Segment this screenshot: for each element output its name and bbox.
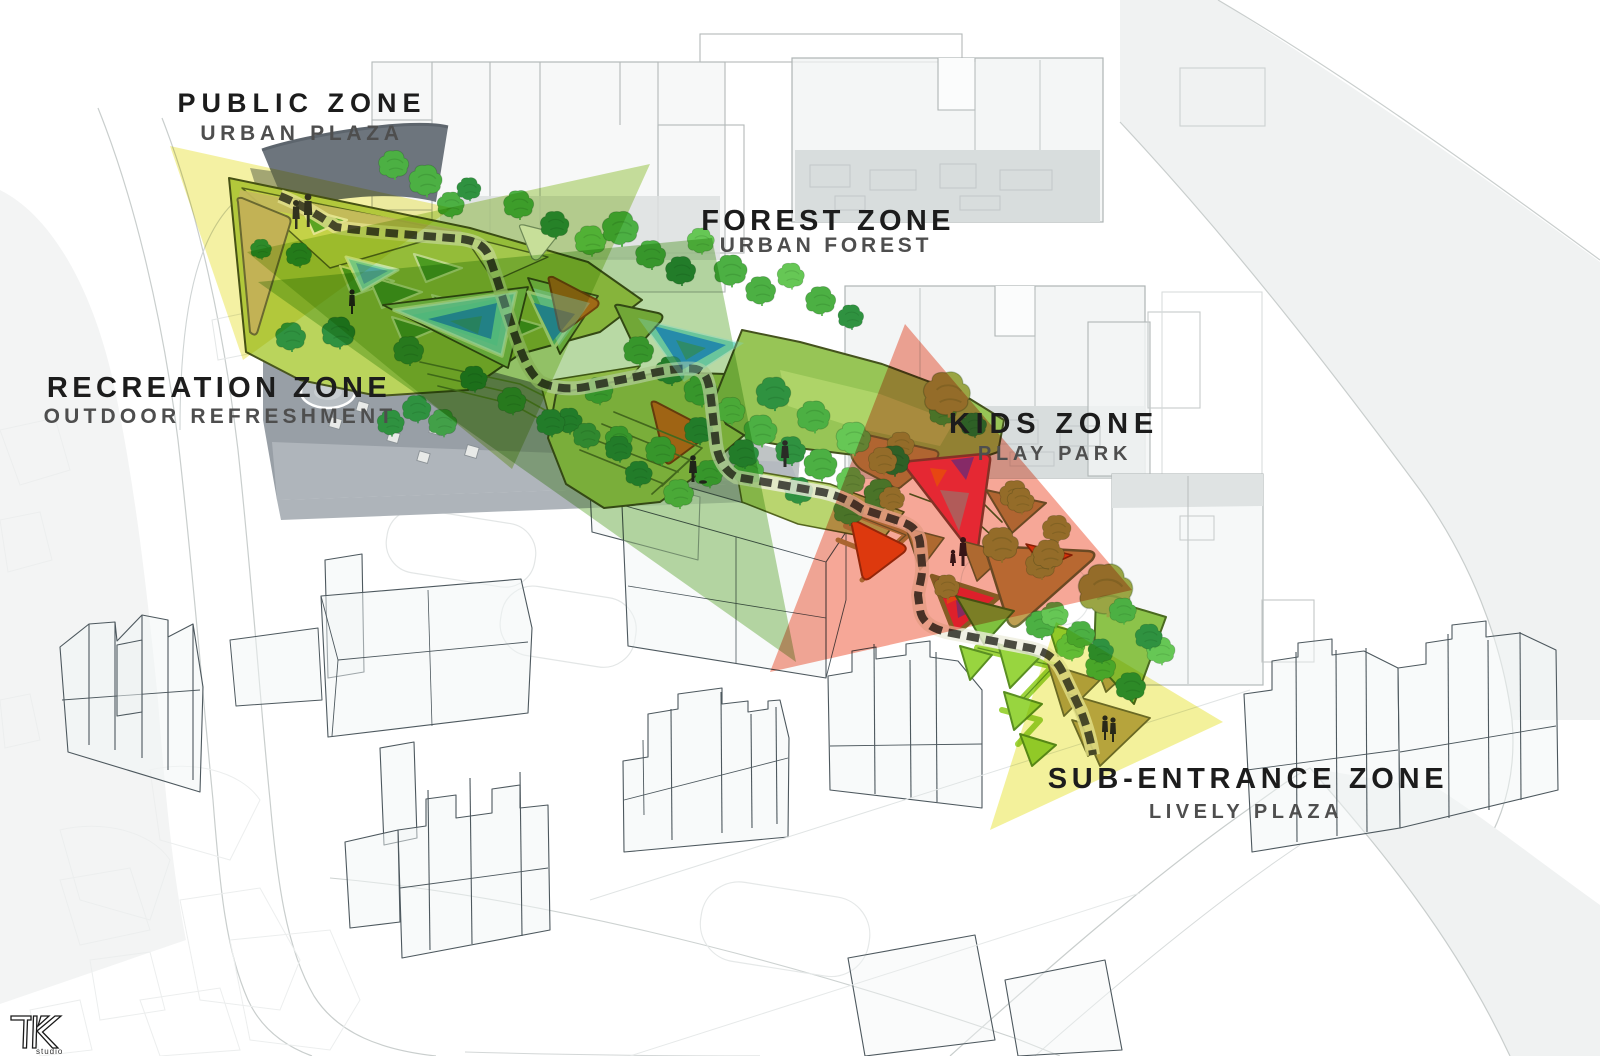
svg-text:studio: studio xyxy=(36,1047,63,1056)
svg-text:LIVELY PLAZA: LIVELY PLAZA xyxy=(1149,801,1343,823)
svg-text:PLAY PARK: PLAY PARK xyxy=(978,443,1132,465)
svg-text:RECREATION ZONE: RECREATION ZONE xyxy=(47,372,391,404)
svg-text:FOREST ZONE: FOREST ZONE xyxy=(701,205,955,237)
svg-text:OUTDOOR REFRESHMENT: OUTDOOR REFRESHMENT xyxy=(44,405,397,428)
svg-text:SUB-ENTRANCE ZONE: SUB-ENTRANCE ZONE xyxy=(1048,763,1449,795)
svg-text:KIDS ZONE: KIDS ZONE xyxy=(949,408,1159,440)
svg-text:URBAN FOREST: URBAN FOREST xyxy=(720,234,932,257)
svg-text:PUBLIC ZONE: PUBLIC ZONE xyxy=(177,88,426,118)
svg-text:URBAN PLAZA: URBAN PLAZA xyxy=(200,122,403,145)
